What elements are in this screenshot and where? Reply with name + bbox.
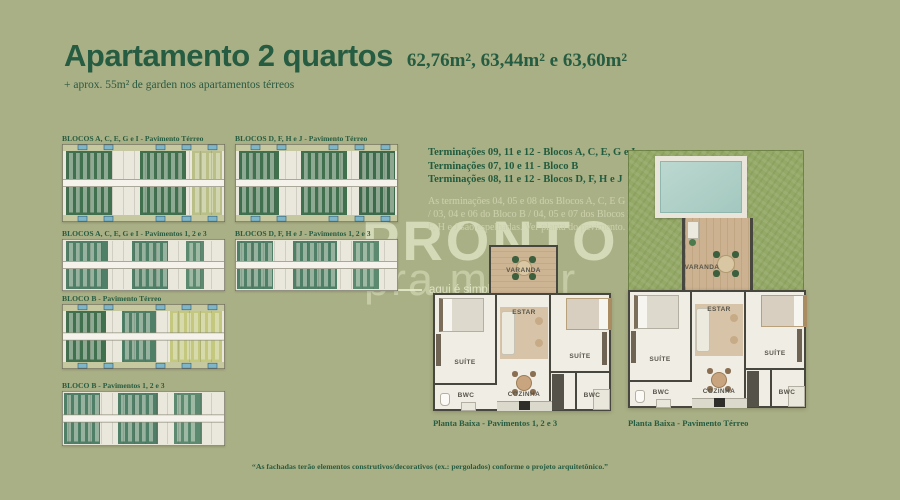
wall (770, 370, 772, 406)
dining-table (516, 375, 532, 391)
room-label-estar: ESTAR (692, 306, 746, 313)
block-floorplan-strip (62, 304, 225, 369)
block-floorplan-strip (235, 144, 398, 222)
terminacao-line: Terminações 07, 10 e 11 - Bloco B (428, 160, 660, 174)
sofa (501, 311, 515, 355)
tagline-dash (396, 289, 422, 291)
bed (566, 298, 612, 330)
wardrobe (602, 332, 607, 365)
block-diagram-label: BLOCO B - Pavimentos 1, 2 e 3 (62, 381, 165, 390)
sink (656, 399, 671, 408)
block-diagram-label: BLOCO B - Pavimento Térreo (62, 294, 161, 303)
plan-caption: Planta Baixa - Pavimentos 1, 2 e 3 (433, 418, 557, 428)
pouf (535, 317, 543, 325)
room-label-bwc-right: BWC (770, 389, 804, 396)
page-title: Apartamento 2 quartos (64, 38, 393, 74)
stove (519, 401, 530, 410)
header: Apartamento 2 quartos 62,76m², 63,44m² e… (64, 38, 627, 91)
chair (512, 273, 519, 280)
stove (714, 398, 725, 407)
sink (461, 402, 476, 411)
chair (530, 371, 536, 377)
room-label-cozinha: COZINHA (497, 391, 551, 398)
garden-area: VARANDA (628, 150, 804, 291)
pool-water (660, 161, 742, 213)
pouf (535, 339, 543, 347)
wall (549, 371, 609, 373)
room-label-estar: ESTAR (497, 309, 551, 316)
area-measurements: 62,76m², 63,44m² e 63,60m² (407, 50, 627, 72)
page-subtitle: + aprox. 55m² de garden nos apartamentos… (64, 79, 627, 91)
room-label-suite-left: SUÍTE (630, 356, 690, 363)
wall (630, 380, 692, 382)
varanda-area: VARANDA (489, 245, 558, 295)
pool (655, 156, 747, 218)
room-label-varanda: VARANDA (491, 267, 556, 274)
room-label-bwc-left: BWC (638, 389, 684, 396)
room-label-bwc-left: BWC (443, 392, 489, 399)
wall (435, 383, 497, 385)
pouf (730, 336, 738, 344)
block-diagram-label: BLOCOS A, C, E, G e I - Pavimentos 1, 2 … (62, 229, 207, 238)
block-floorplan-strip (62, 239, 225, 291)
plan-caption: Planta Baixa - Pavimento Térreo (628, 418, 748, 428)
sofa (696, 308, 710, 352)
chair (732, 270, 739, 277)
room-label-suite-right: SUÍTE (746, 350, 804, 357)
chair (713, 270, 720, 277)
block-diagram-label: BLOCOS D, F, H e J - Pavimentos 1, 2 e 3 (235, 229, 371, 238)
floor-plan-upper: VARANDA (433, 245, 612, 430)
block-diagram-label: BLOCOS D, F, H e J - Pavimento Térreo (235, 134, 367, 143)
chair (725, 368, 731, 374)
plant (689, 239, 696, 246)
fridge (552, 374, 564, 410)
fridge (747, 371, 759, 407)
terminacoes-note: As terminações 04, 05 e 08 dos Blocos A,… (428, 195, 642, 234)
bed (439, 298, 484, 332)
wall (744, 368, 804, 370)
room-label-varanda: VARANDA (679, 264, 725, 271)
wall (682, 218, 685, 292)
terminacao-line: Terminações 08, 11 e 12 - Blocos D, F, H… (428, 173, 660, 187)
dining-table (711, 372, 727, 388)
table-top (711, 372, 727, 388)
chair (529, 273, 536, 280)
room-label-suite-right: SUÍTE (551, 353, 609, 360)
bed (761, 295, 807, 327)
block-floorplan-strip (62, 144, 225, 222)
room-label-suite-left: SUÍTE (435, 359, 495, 366)
block-floorplan-strip (62, 391, 225, 446)
table-top (516, 375, 532, 391)
terminacao-line: Terminações 09, 11 e 12 - Blocos A, C, E… (428, 146, 660, 160)
chair (713, 251, 720, 258)
block-floorplan-strip (235, 239, 398, 291)
apartment-body: SUÍTE SUÍTE ESTAR COZINHA BWC BWC (628, 290, 806, 408)
pouf (730, 314, 738, 322)
bed (634, 295, 679, 329)
chair (512, 256, 519, 263)
terminacoes-panel: Terminações 09, 11 e 12 - Blocos A, C, E… (428, 146, 660, 234)
chair (707, 368, 713, 374)
block-diagram-label: BLOCOS A, C, E, G e I - Pavimento Térreo (62, 134, 203, 143)
room-label-cozinha: COZINHA (692, 388, 746, 395)
floor-plan-ground: VARANDA (628, 150, 805, 440)
chair (512, 371, 518, 377)
wall (750, 218, 753, 292)
brochure-page: PRONTO pra morar aqui é simples Apartame… (0, 0, 900, 500)
planter-cabinet (687, 221, 699, 239)
room-label-bwc-right: BWC (575, 392, 609, 399)
wardrobe (797, 329, 802, 362)
wall (575, 373, 577, 409)
chair (732, 251, 739, 258)
apartment-body: SUÍTE SUÍTE ESTAR COZINHA BWC BWC (433, 293, 611, 411)
chair (529, 256, 536, 263)
